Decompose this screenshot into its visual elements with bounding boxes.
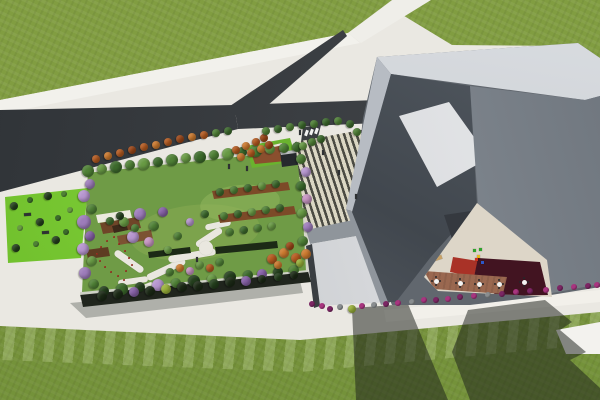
cafe-table-icon [494, 279, 504, 289]
tree-icon [166, 268, 174, 276]
garden-path [118, 276, 149, 286]
flower-bush-icon [557, 285, 563, 291]
tree-icon [302, 194, 312, 204]
hedge-icon [113, 289, 123, 299]
tree-icon [274, 261, 282, 269]
amphitheater-edge [0, 0, 600, 400]
tree-icon [89, 279, 99, 289]
hedge-icon [290, 271, 298, 279]
tree-icon [257, 145, 265, 153]
hedge-icon [97, 291, 107, 301]
tree-icon [230, 186, 238, 194]
main-building-left-edge-lower [0, 0, 600, 400]
tree-icon [257, 269, 267, 279]
amphitheater-steps [0, 0, 600, 400]
tree-icon [97, 164, 107, 174]
flower-bush-icon [585, 283, 591, 289]
tree-icon [85, 179, 95, 189]
tree-icon [279, 248, 289, 258]
tree-icon [303, 222, 313, 232]
hedge-icon [193, 281, 203, 291]
facade-hedges [0, 0, 600, 400]
main-building-right-slope [0, 0, 600, 400]
main-building-mass [0, 0, 600, 400]
bush-icon [63, 229, 69, 235]
tree-icon [212, 129, 220, 137]
shadow-garden-building [0, 0, 600, 400]
tree-icon [322, 118, 330, 126]
playground-icon [473, 249, 476, 252]
tree-icon [279, 143, 289, 153]
mown-stripes [0, 0, 600, 400]
tree-icon [242, 142, 250, 150]
flower-bush-icon [471, 293, 477, 299]
tree-icon [194, 151, 206, 163]
tree-icon [176, 264, 184, 272]
tree-icon [186, 267, 194, 275]
hedge-icon [209, 279, 219, 289]
tree-icon [131, 224, 139, 232]
flower-dot-icon [117, 275, 119, 277]
tree-icon [77, 215, 91, 229]
flower-dot-icon [110, 271, 112, 273]
flower-bush-icon [527, 288, 533, 294]
tree-icon [276, 204, 284, 212]
tree-icon [171, 278, 181, 288]
crosswalk-stripe [309, 129, 314, 136]
garden-path [145, 257, 186, 281]
tree-icon [243, 270, 253, 280]
tree-icon [234, 210, 242, 218]
striped-entrance-plaza [0, 0, 600, 400]
garden-curb-right [0, 0, 600, 400]
bush-icon [10, 202, 18, 210]
garden-path [137, 281, 154, 293]
plaza-lawn-patch [0, 0, 600, 400]
lawn-highlight [127, 198, 262, 266]
tree-icon [92, 155, 100, 163]
bush-icon [33, 241, 39, 247]
hedgerow [0, 0, 600, 400]
tree-icon [272, 180, 280, 188]
tree-icon [110, 161, 122, 173]
bush-icon [44, 192, 52, 200]
tree-icon [164, 246, 172, 254]
tree-icon [216, 258, 224, 266]
loungers [0, 0, 600, 400]
playground-equipment [0, 0, 600, 400]
orchard-pergola [0, 0, 600, 400]
tree-icon [301, 167, 311, 177]
tree-icon [186, 218, 194, 226]
garden-trees [0, 0, 600, 400]
tree-icon [291, 253, 301, 263]
flower-bush-icon [359, 303, 365, 309]
flower-bush-icon [499, 291, 505, 297]
hedge-icon [274, 273, 282, 281]
tree-icon [99, 286, 109, 296]
tree-icon [244, 184, 252, 192]
tree-icon [262, 127, 270, 135]
flower-bush-icon [445, 296, 451, 302]
tree-icon [188, 275, 200, 287]
flower-dot-icon [128, 257, 130, 259]
playground-icon [477, 255, 480, 258]
courtyard-maroon-floor [0, 0, 600, 400]
tree-icon [127, 231, 139, 243]
tree-icon [174, 232, 182, 240]
tree-icon [207, 274, 217, 284]
bush-icon [55, 215, 61, 221]
tree-icon [310, 120, 318, 128]
stage [0, 0, 600, 400]
tree-icon [237, 153, 245, 161]
tree-icon [201, 210, 209, 218]
flower-bush-icon [485, 292, 491, 298]
path-bottom-right [0, 0, 600, 400]
slope-window [0, 0, 600, 400]
person-figure [246, 166, 248, 171]
flower-dot-icon [106, 240, 108, 242]
tree-icon [128, 146, 136, 154]
tree-icon [144, 237, 154, 247]
lounger-icon [426, 258, 435, 264]
playground-icon [479, 248, 482, 251]
tree-icon [273, 267, 283, 277]
plaza-trees [0, 0, 600, 400]
tree-icon [317, 135, 325, 143]
tree-icon [353, 128, 361, 136]
flower-bush-icon [319, 303, 325, 309]
hedge-icon [129, 287, 139, 297]
skylight-panel [0, 0, 600, 400]
shadow-main-building [0, 0, 600, 400]
path-strip-top [0, 0, 600, 400]
tree-icon [116, 283, 128, 295]
tree-icon [292, 142, 302, 152]
tree-icon [106, 217, 114, 225]
tree-icon [140, 143, 148, 151]
tree-icon [87, 256, 97, 266]
tree-icon [296, 154, 306, 164]
tree-icon [149, 221, 159, 231]
pavilion-roof [0, 0, 600, 400]
playground-icon [475, 258, 478, 261]
crosswalk-stripe [304, 130, 309, 137]
flower-dot-icon [96, 253, 98, 255]
pavilion-deck [0, 0, 600, 400]
tree-icon [232, 146, 240, 154]
tree-icon [224, 127, 232, 135]
kiosk-shelter [0, 0, 600, 400]
cafe-table-icon [474, 279, 484, 289]
tree-icon [200, 131, 208, 139]
rooftop-garden-features [0, 0, 600, 400]
tree-icon [119, 217, 129, 227]
tree-icon [196, 261, 204, 269]
flower-bush-icon [371, 302, 377, 308]
tree-icon [82, 165, 94, 177]
flower-bush-icon [348, 305, 356, 313]
road-main [0, 0, 600, 400]
tree-icon [209, 150, 219, 160]
flower-bush-icon [327, 306, 333, 312]
tree-icon [79, 267, 91, 279]
bush-icon [12, 244, 20, 252]
lounger-icon [434, 255, 443, 261]
road-branch-upper [0, 0, 600, 400]
tree-icon [222, 148, 234, 160]
bush-icon [67, 207, 73, 213]
lawn-highlight [198, 181, 281, 225]
person-figure [355, 194, 357, 199]
road-branch-right [0, 0, 600, 400]
person-figure [322, 150, 324, 155]
bush-icon [52, 236, 60, 244]
grass-field-bottom [0, 0, 600, 400]
tree-icon [346, 120, 354, 128]
person-figure [228, 164, 230, 169]
bush-icon [36, 218, 44, 226]
garden-path-plaza [199, 241, 213, 255]
flower-bush-icon [594, 282, 600, 288]
road-driveway [0, 0, 600, 400]
tree-icon [265, 144, 275, 154]
tree-icon [296, 181, 306, 191]
pavilion-interior [0, 0, 600, 400]
rooftop-garden-lawn [0, 0, 600, 400]
tree-icon [176, 135, 184, 143]
tree-icon [252, 138, 260, 146]
flower-bush-icon [543, 287, 549, 293]
flower-bush-icon [421, 297, 427, 303]
tree-icon [125, 160, 135, 170]
flower-bush-icon [457, 294, 463, 300]
benches [0, 0, 600, 400]
tree-icon [289, 265, 299, 275]
cafe-table-icon [431, 276, 441, 286]
annex-roof [0, 0, 600, 400]
flower-dot-icon [131, 264, 133, 266]
hedgerow [0, 0, 600, 400]
grass-field-lower [0, 0, 600, 400]
tree-icon [286, 123, 294, 131]
pavilion-deck [0, 0, 600, 400]
bench-icon [24, 213, 31, 216]
main-building-left-edge-upper [0, 0, 600, 400]
left-lawn-bushes [0, 0, 600, 400]
sidewalk-upper [0, 0, 600, 400]
sidewalk-building-base [0, 0, 600, 400]
person-figure [299, 130, 301, 135]
tree-icon [216, 188, 224, 196]
garden-path [195, 226, 224, 248]
tree-icon [116, 212, 124, 220]
bush-icon [17, 225, 23, 231]
grass-field-top-right [0, 0, 600, 400]
bush-icon [27, 197, 33, 203]
shadow-annex [0, 0, 600, 400]
tree-icon [334, 117, 342, 125]
tree-icon [258, 182, 266, 190]
tree-icon [78, 190, 90, 202]
flower-row [0, 0, 600, 400]
hedge-icon [225, 277, 235, 287]
tree-icon [224, 271, 236, 283]
hedge-icon [161, 284, 171, 294]
tree-icon [240, 226, 248, 234]
person-figure [196, 257, 198, 262]
flower-bush-icon [395, 300, 401, 306]
tree-icon [298, 236, 308, 246]
courtyard [0, 0, 600, 400]
tree-icon [152, 279, 164, 291]
person-figure [338, 170, 340, 175]
flower-bush-icon [433, 297, 439, 303]
cafe-tables [0, 0, 600, 400]
pedestrians [0, 0, 600, 400]
bush-icon [61, 191, 67, 197]
hedge-icon [177, 282, 187, 292]
main-building-left-slope [0, 0, 600, 400]
flower-dot-icon [118, 243, 120, 245]
flower-bush-icon [337, 304, 343, 310]
flower-dot-icon [125, 270, 127, 272]
tree-icon [268, 222, 276, 230]
kiosk-roof [0, 0, 600, 400]
pocket-lawn-left [0, 0, 600, 400]
tree-icon [254, 224, 262, 232]
tree-icon [181, 153, 191, 163]
tree-icon [248, 208, 256, 216]
annex-fascia [0, 0, 600, 400]
tree-icon [87, 204, 97, 214]
courtyard-terrace [0, 0, 600, 400]
tree-icon [104, 152, 112, 160]
tree-icon [153, 157, 163, 167]
courtyard-red-floor [0, 0, 600, 400]
flower-dot-icon [104, 266, 106, 268]
flower-dot-icon [99, 260, 101, 262]
tree-icon [188, 133, 196, 141]
tree-icon [85, 231, 95, 241]
tree-icon [77, 243, 89, 255]
cafe-table-icon [455, 278, 465, 288]
flower-dot-icon [100, 246, 102, 248]
crosswalk-stripe [314, 128, 319, 135]
crosswalk [0, 0, 600, 400]
pavilion-deck [0, 0, 600, 400]
hedge-icon [241, 276, 251, 286]
tree-icon [260, 134, 268, 142]
flower-bush-icon [409, 299, 415, 305]
hedge-icon [258, 275, 266, 283]
playground-icon [481, 261, 484, 264]
tree-icon [158, 207, 168, 217]
garden-building-facade [0, 0, 600, 400]
garden-path [168, 248, 216, 263]
red-flower-bed [0, 0, 600, 400]
hedge-icon [145, 286, 155, 296]
flower-bush-icon [571, 284, 577, 290]
tree-icon [301, 249, 311, 259]
flower-dot-icon [124, 250, 126, 252]
tree-icon [299, 142, 307, 150]
tree-icon [164, 138, 172, 146]
garden-path [113, 249, 145, 274]
tree-icon [237, 147, 247, 157]
tree-icon [116, 149, 124, 157]
bench-icon [42, 231, 49, 234]
tree-icon [152, 141, 160, 149]
tree-icon [247, 149, 255, 157]
tree-icon [286, 242, 294, 250]
tree-icon [206, 264, 214, 272]
flower-dot-icon [113, 236, 115, 238]
cafe-table-icon [519, 277, 529, 287]
tree-icon [166, 154, 178, 166]
tree-icon [298, 121, 306, 129]
tree-icon [262, 206, 270, 214]
grass-field-top-left [0, 0, 600, 400]
tree-icon [274, 125, 282, 133]
orchard-pergola [0, 0, 600, 400]
tree-icon [267, 254, 277, 264]
tree-icon [265, 141, 273, 149]
tree-icon [297, 208, 307, 218]
tree-icon [308, 138, 316, 146]
flower-bush-icon [383, 301, 389, 307]
tree-icon [220, 212, 228, 220]
garden-building-parapet [0, 0, 600, 400]
garden-curb-top [0, 0, 600, 400]
flower-bush-icon [513, 289, 519, 295]
tree-icon [226, 228, 234, 236]
tree-icon [250, 145, 262, 157]
garden-path [205, 219, 232, 230]
flower-dot-icon [123, 279, 125, 281]
entrance-canopy [0, 0, 600, 400]
tree-icon [134, 208, 146, 220]
flower-bush-icon [309, 301, 315, 307]
main-building-parapet [0, 0, 600, 400]
tree-icon [296, 259, 304, 267]
tree-icon [138, 158, 150, 170]
tree-icon [135, 282, 145, 292]
